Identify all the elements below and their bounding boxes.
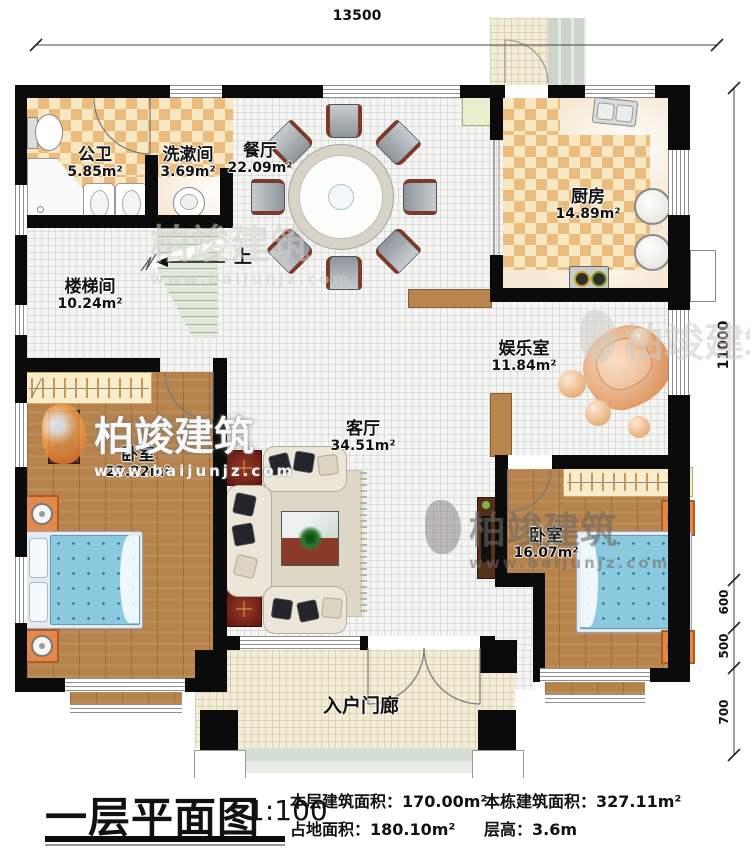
total-area-value: 327.11m² [596, 792, 681, 811]
floor-area-label: 本层建筑面积： [290, 792, 402, 811]
floor-area-stat: 本层建筑面积：170.00m² [290, 788, 487, 812]
room-name: 楼梯间 [57, 278, 122, 297]
room-label-kitchen: 厨房 14.89m² [555, 188, 620, 222]
room-label-porch: 入户门廊 [323, 696, 399, 717]
room-area: 34.51m² [330, 439, 395, 454]
room-label-washroom: 洗漱间 3.69m² [160, 146, 215, 180]
room-area: 3.69m² [160, 165, 215, 180]
room-label-living: 客厅 34.51m² [330, 420, 395, 454]
storey-height-label: 层高： [484, 820, 532, 839]
stairs-up-text: 上 [234, 248, 252, 268]
room-name: 入户门廊 [323, 696, 399, 717]
stairs-up-label: 上 [234, 248, 252, 268]
title-block: 一层平面图 1:100 本层建筑面积：170.00m² 占地面积：180.10m… [0, 778, 750, 848]
room-label-recreation: 娱乐室 11.84m² [491, 340, 556, 374]
total-area-stat: 本栋建筑面积：327.11m² [484, 788, 681, 812]
room-label-bedroom2: 卧室 16.07m² [513, 527, 578, 561]
site-area-label: 占地面积： [290, 820, 370, 839]
dim-label-right-700: 700 [717, 699, 731, 724]
dim-label-top: 13500 [333, 8, 382, 24]
room-label-bathroom: 公卫 5.85m² [67, 146, 122, 180]
room-name: 公卫 [67, 146, 122, 165]
storey-height-value: 3.6m [532, 820, 577, 839]
dim-label-right-total: 11000 [716, 321, 732, 370]
room-name: 厨房 [555, 188, 620, 207]
room-area: 16.07m² [513, 546, 578, 561]
storey-height-stat: 层高：3.6m [484, 816, 577, 840]
room-name: 卧室 [105, 446, 170, 465]
room-area: 22.09m² [227, 161, 292, 176]
room-label-stairwell: 楼梯间 10.24m² [57, 278, 122, 312]
dim-label-right-600: 600 [717, 589, 731, 614]
room-area: 23.22m² [105, 465, 170, 480]
floor-plan-canvas: 13500 11000 600 500 700 公卫 5.85m² 洗漱间 3.… [0, 0, 750, 848]
room-name: 餐厅 [227, 142, 292, 161]
dim-label-right-500: 500 [717, 633, 731, 658]
site-area-stat: 占地面积：180.10m² [290, 816, 455, 840]
room-name: 客厅 [330, 420, 395, 439]
room-area: 5.85m² [67, 165, 122, 180]
room-label-bedroom1: 卧室 23.22m² [105, 446, 170, 480]
room-label-dining: 餐厅 22.09m² [227, 142, 292, 176]
title-underline [45, 836, 285, 842]
room-name: 洗漱间 [160, 146, 215, 165]
room-area: 14.89m² [555, 207, 620, 222]
total-area-label: 本栋建筑面积： [484, 792, 596, 811]
room-name: 卧室 [513, 527, 578, 546]
site-area-value: 180.10m² [370, 820, 455, 839]
floor-area-value: 170.00m² [402, 792, 487, 811]
title-underline-thin [45, 844, 285, 846]
room-area: 11.84m² [491, 359, 556, 374]
room-name: 娱乐室 [491, 340, 556, 359]
room-area: 10.24m² [57, 297, 122, 312]
